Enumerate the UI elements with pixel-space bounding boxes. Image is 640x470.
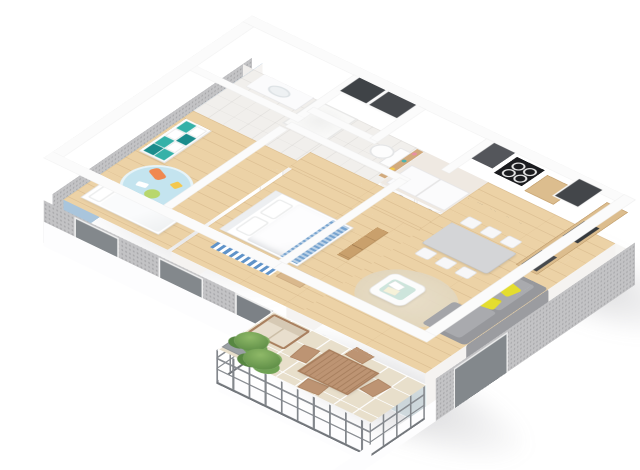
floor-plan-render — [0, 0, 640, 470]
armchair-seat-split — [267, 328, 285, 340]
apartment-plan — [53, 58, 635, 379]
decor-items — [411, 152, 418, 156]
toy — [169, 181, 183, 189]
toy — [135, 181, 149, 188]
toy — [148, 167, 168, 180]
decor-items — [401, 159, 408, 163]
